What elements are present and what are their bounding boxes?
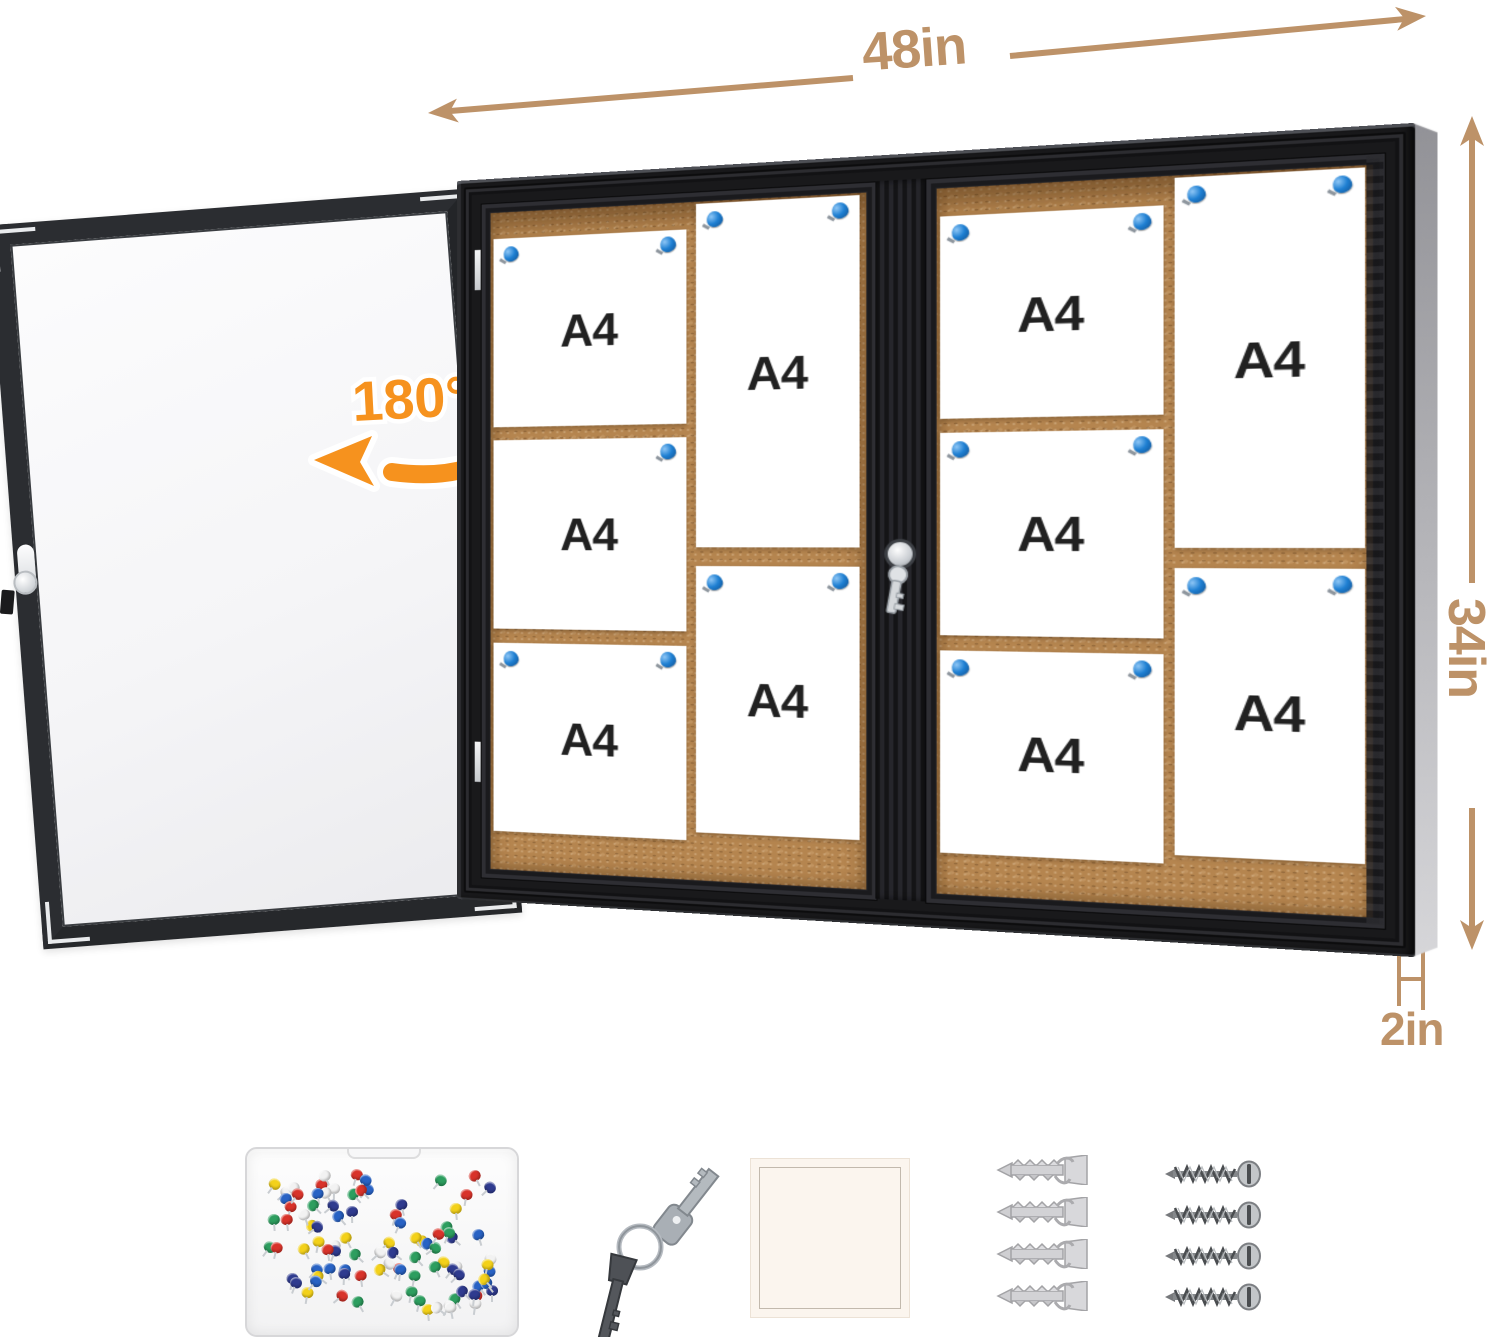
width-dimension-label: 48in	[860, 14, 968, 83]
a4-paper: A4	[696, 195, 860, 547]
a4-paper: A4	[940, 650, 1163, 863]
pushpin-icon	[503, 246, 518, 262]
wall-anchors	[995, 1155, 1095, 1323]
screw-icon	[1163, 1283, 1267, 1311]
product-illustration: 48in 34in 2in 180° 180°	[0, 0, 1500, 1337]
paper-label: A4	[747, 345, 808, 401]
paper-label: A4	[747, 673, 808, 729]
paper-label: A4	[1017, 726, 1083, 785]
frame-rib-texture	[1366, 155, 1383, 925]
width-arrow-left-line	[438, 78, 853, 112]
screws	[1163, 1160, 1267, 1324]
pushpin-icon	[707, 211, 723, 227]
corner-bracket-icon	[0, 227, 38, 272]
a4-paper: A4	[494, 229, 687, 427]
bulletin-board-cabinet: A4 A4 A4 A4	[457, 123, 1415, 957]
pushpin-icon	[323, 1262, 337, 1281]
pushpin-box	[245, 1147, 519, 1337]
center-divider	[875, 178, 925, 901]
height-dimension-label: 34in	[1436, 598, 1496, 698]
pushpin-icon	[338, 1268, 351, 1286]
arrowhead-right	[1395, 4, 1427, 31]
screw-icon	[1163, 1160, 1267, 1188]
pushpin-icon	[329, 1287, 350, 1307]
sliding-door-section-left: A4 A4 A4 A4	[481, 181, 878, 901]
pushpin-icon	[660, 652, 676, 668]
wall-anchor-icon	[995, 1239, 1095, 1269]
a4-paper: A4	[696, 566, 860, 840]
pushpin-icon	[832, 202, 849, 219]
pushpin-icon	[406, 1269, 421, 1288]
a4-paper: A4	[940, 205, 1163, 419]
pushpin-icon	[386, 1288, 405, 1309]
pushpin-icon	[1133, 213, 1151, 231]
pushpin-icon	[952, 224, 969, 241]
adhesive-square	[750, 1158, 910, 1318]
pushpin-icon	[1187, 185, 1206, 203]
a4-paper: A4	[940, 429, 1163, 638]
key-icon	[591, 1254, 637, 1337]
pushpin-icon	[660, 444, 676, 460]
wall-anchor-icon	[995, 1155, 1095, 1185]
pushpin-icon	[428, 1172, 448, 1193]
paper-label: A4	[1017, 284, 1083, 344]
pushpin-icon	[1333, 576, 1352, 593]
pushpin-icon	[350, 1294, 369, 1315]
sliding-door-section-right: A4 A4 A4 A4	[925, 152, 1386, 930]
open-glass-door	[0, 189, 522, 950]
wall-anchor-icon	[995, 1197, 1095, 1227]
screw-icon	[1163, 1201, 1267, 1229]
pushpin-icon	[952, 441, 969, 458]
pushpin-icon	[952, 659, 969, 676]
paper-label: A4	[1233, 684, 1303, 745]
pushpin-icon	[832, 573, 849, 589]
pushpin-icon	[1133, 436, 1151, 453]
paper-label: A4	[560, 302, 617, 357]
paper-label: A4	[560, 508, 617, 561]
a4-paper: A4	[1175, 167, 1365, 548]
hanging-key-icon	[873, 562, 917, 625]
a4-paper: A4	[1175, 568, 1365, 864]
a4-paper: A4	[494, 437, 687, 631]
depth-bracket	[1399, 948, 1423, 1010]
pushpin-icon	[1333, 175, 1352, 193]
pushpin-icon	[707, 574, 723, 590]
keys	[580, 1145, 720, 1337]
a4-paper: A4	[494, 643, 687, 841]
depth-dimension-label: 2in	[1380, 1002, 1443, 1056]
paper-label: A4	[560, 712, 617, 767]
pushpin-icon	[1187, 577, 1206, 594]
width-arrow-right-line	[1010, 18, 1416, 56]
pushpin-icon	[471, 1227, 487, 1247]
key-icon	[651, 1164, 720, 1247]
pushpin-icon	[660, 236, 676, 252]
pushpin-icon	[450, 1202, 464, 1220]
paper-label: A4	[1233, 330, 1303, 391]
pushpin-icon	[268, 1213, 281, 1231]
screw-icon	[1163, 1242, 1267, 1270]
pushpin-icon	[346, 1247, 367, 1267]
pushpin-icon	[354, 1269, 368, 1287]
door-lock	[8, 544, 43, 606]
arrowhead-down	[1460, 920, 1484, 950]
wall-anchor-icon	[995, 1281, 1095, 1311]
cork-board: A4 A4 A4 A4	[937, 165, 1373, 918]
pushpin-icon	[280, 1214, 294, 1232]
arrowhead-up	[1460, 116, 1484, 146]
latch-icon	[0, 590, 15, 615]
cork-board: A4 A4 A4 A4	[491, 193, 867, 890]
pushpin-icon	[346, 1206, 358, 1223]
corner-bracket-icon	[45, 899, 90, 944]
pushpin-icon	[503, 651, 518, 666]
cabinet-side-face	[1415, 123, 1438, 958]
paper-label: A4	[1017, 505, 1083, 563]
pushpin-icon	[393, 1263, 407, 1281]
arrowhead-left	[427, 99, 459, 125]
pushpin-icon	[1133, 660, 1151, 677]
